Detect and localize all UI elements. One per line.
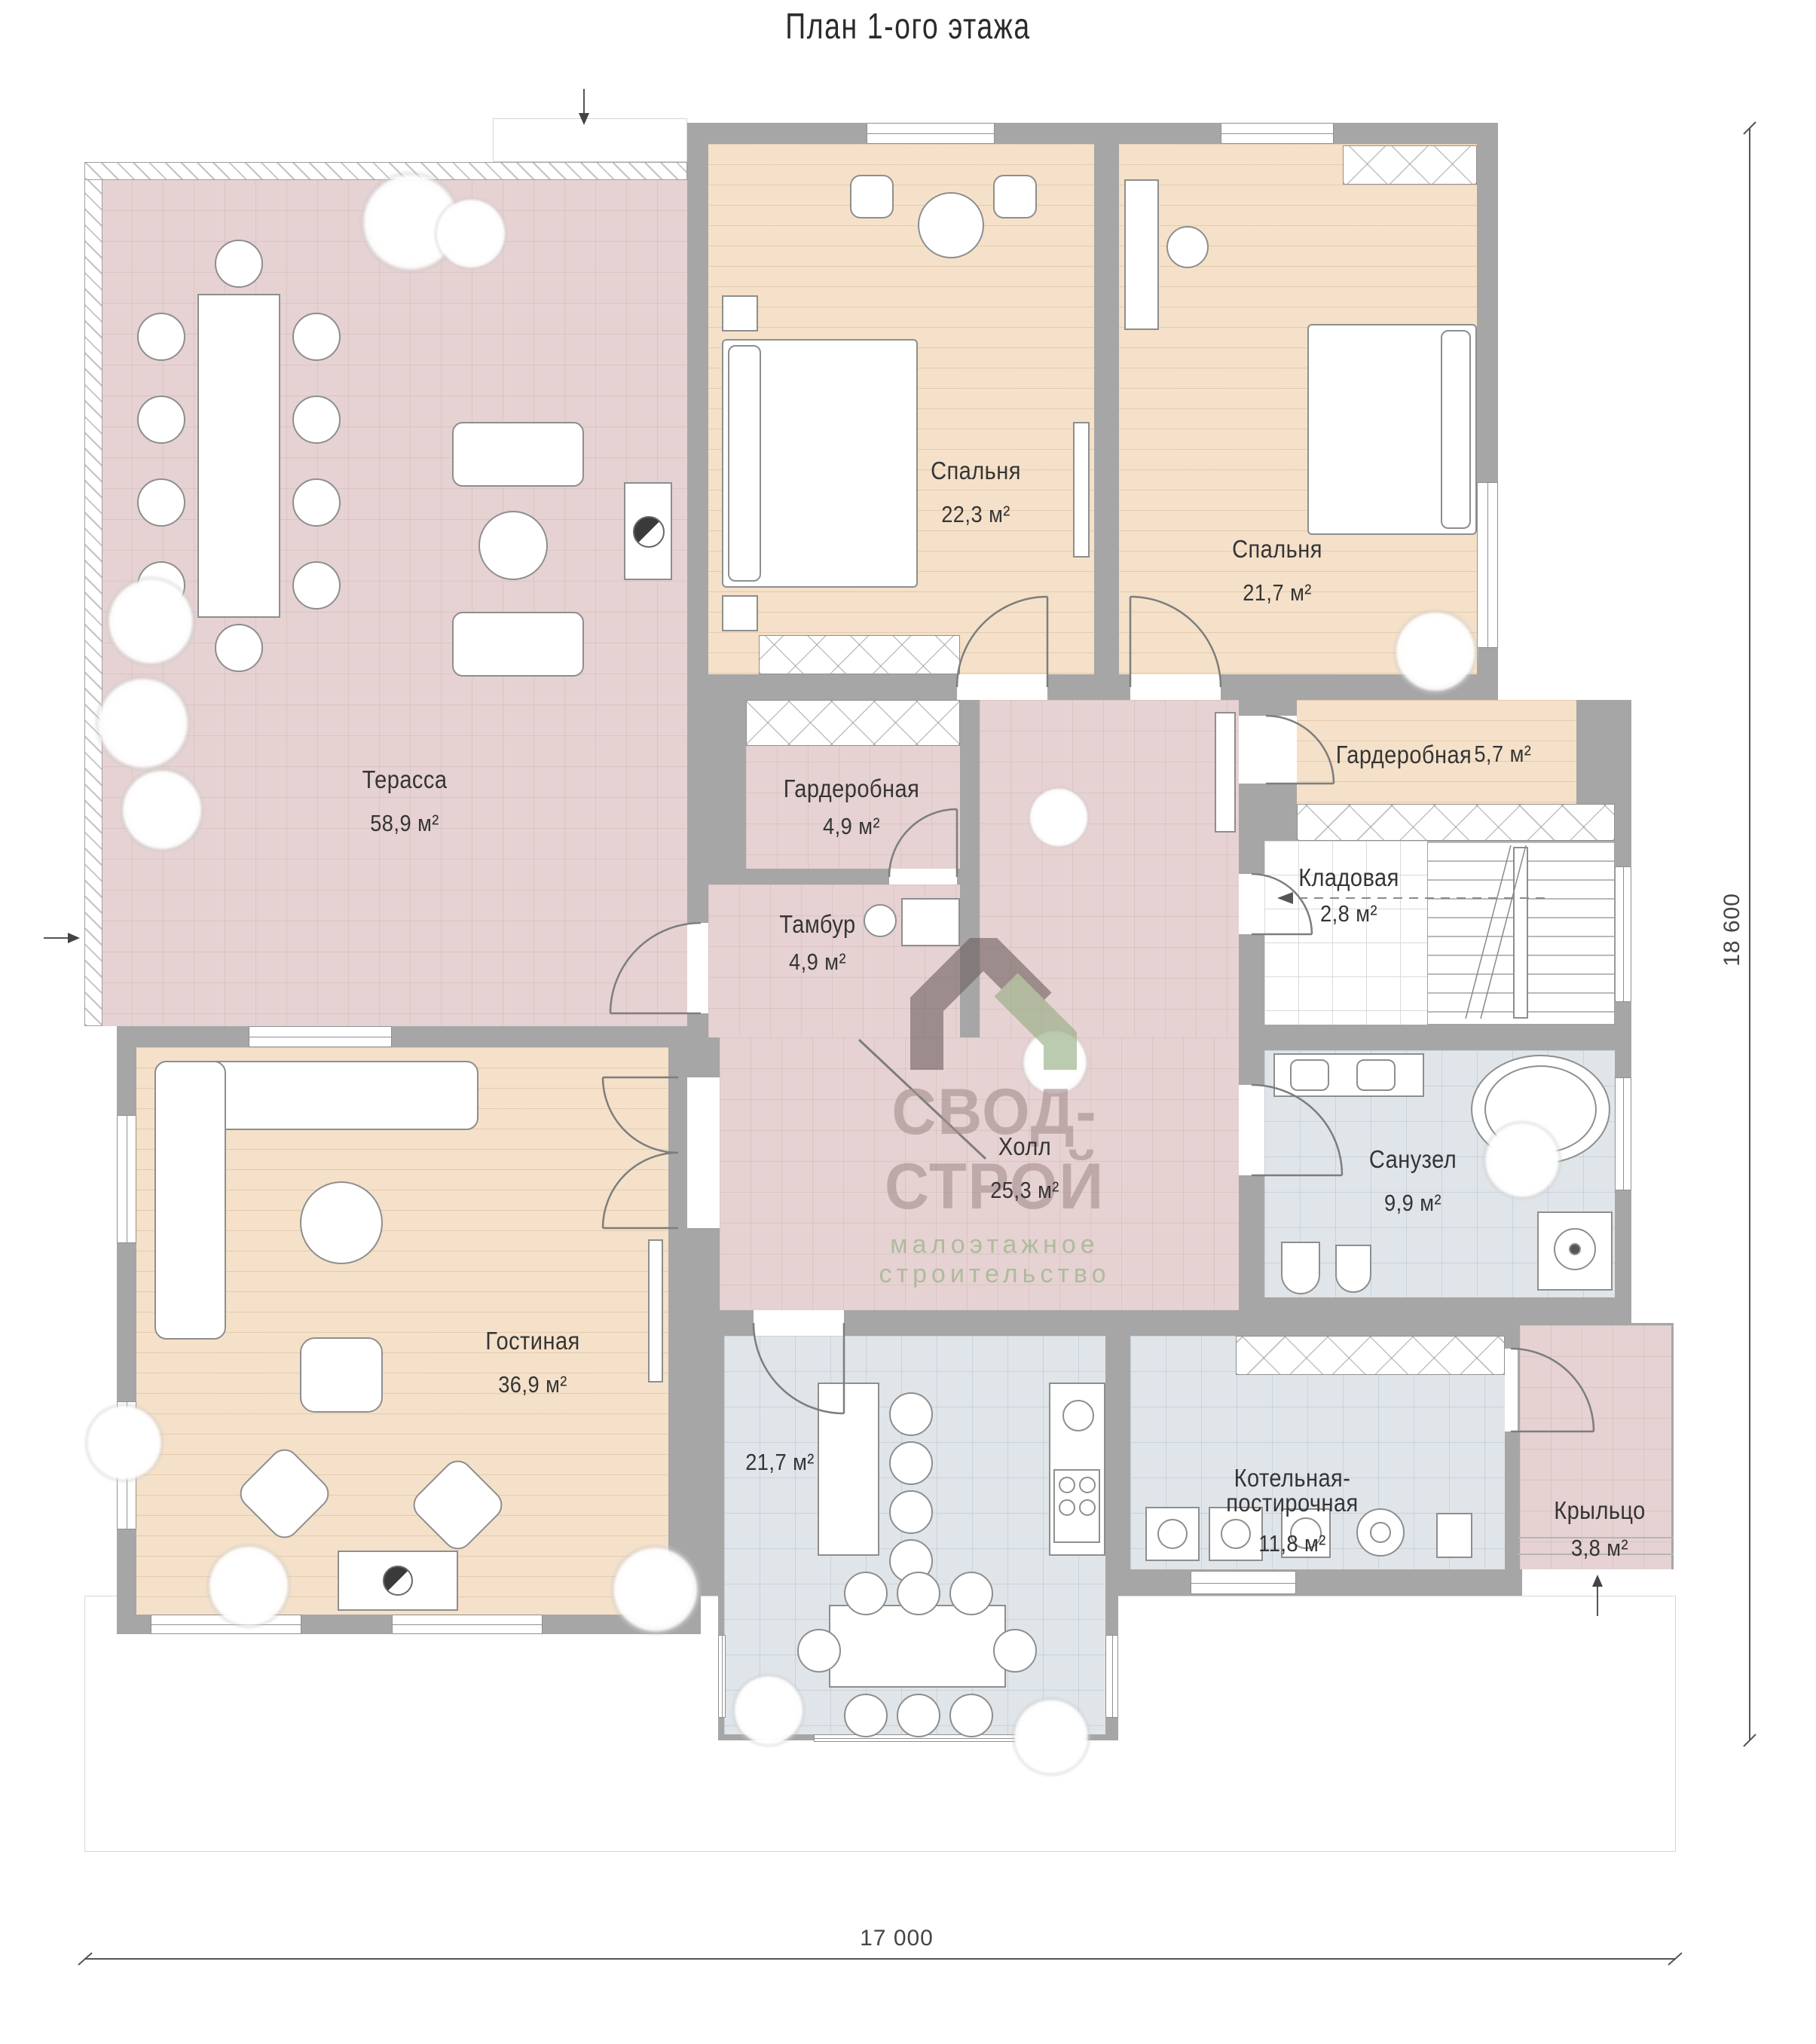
room-label-porch: Крыльцо 3,8 м² bbox=[1543, 1498, 1656, 1560]
room-label-kitchen: 21,7 м² bbox=[727, 1450, 833, 1474]
floor-plan-canvas: План 1-ого этажа bbox=[0, 0, 1816, 2044]
logo-watermark: СВОД-СТРОЙ малоэтажное строительство bbox=[791, 938, 1198, 1289]
room-label-wardrobe-1: Гардеробная 4,9 м² bbox=[766, 776, 938, 838]
room-label-hall: Холл 25,3 м² bbox=[965, 1134, 1084, 1202]
room-label-bedroom-1: Спальня 22,3 м² bbox=[893, 458, 1059, 526]
logo-subtitle: малоэтажное строительство bbox=[791, 1230, 1198, 1289]
logo-house-icon bbox=[900, 938, 1089, 1070]
room-label-boiler: Котельная-постирочная 11,8 м² bbox=[1176, 1465, 1408, 1555]
room-label-terrace: Терасса 58,9 м² bbox=[319, 767, 491, 835]
dimension-width-label: 17 000 bbox=[829, 1926, 965, 1951]
dimension-height-label: 18 600 bbox=[1720, 893, 1745, 967]
room-label-pantry: Кладовая 2,8 м² bbox=[1283, 865, 1415, 925]
room-label-wardrobe-2: Гардеробная 5,7 м² bbox=[1336, 742, 1532, 767]
room-label-living: Гостиная 36,9 м² bbox=[450, 1328, 616, 1396]
room-label-bedroom-2: Спальня 21,7 м² bbox=[1194, 536, 1360, 604]
room-label-tambur: Тамбур 4,9 м² bbox=[761, 912, 874, 973]
room-label-bathroom: Санузел 9,9 м² bbox=[1350, 1147, 1475, 1214]
